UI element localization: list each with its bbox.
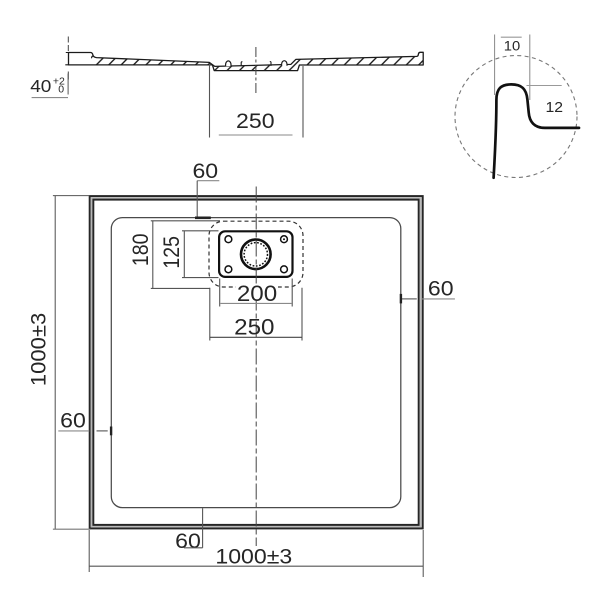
svg-text:10: 10 — [504, 39, 521, 54]
svg-text:180: 180 — [129, 234, 154, 267]
svg-text:60: 60 — [175, 529, 201, 553]
svg-text:1000±3: 1000±3 — [215, 545, 292, 569]
svg-text:60: 60 — [428, 277, 454, 301]
svg-text:125: 125 — [160, 236, 185, 269]
svg-text:200: 200 — [237, 281, 277, 306]
svg-text:60: 60 — [192, 159, 218, 183]
svg-text:0: 0 — [58, 85, 64, 96]
svg-text:250: 250 — [236, 109, 275, 133]
svg-text:12: 12 — [546, 100, 564, 116]
svg-text:1000±3: 1000±3 — [27, 313, 50, 386]
svg-text:250: 250 — [234, 315, 274, 340]
svg-text:60: 60 — [60, 409, 86, 433]
svg-text:40: 40 — [30, 77, 51, 96]
